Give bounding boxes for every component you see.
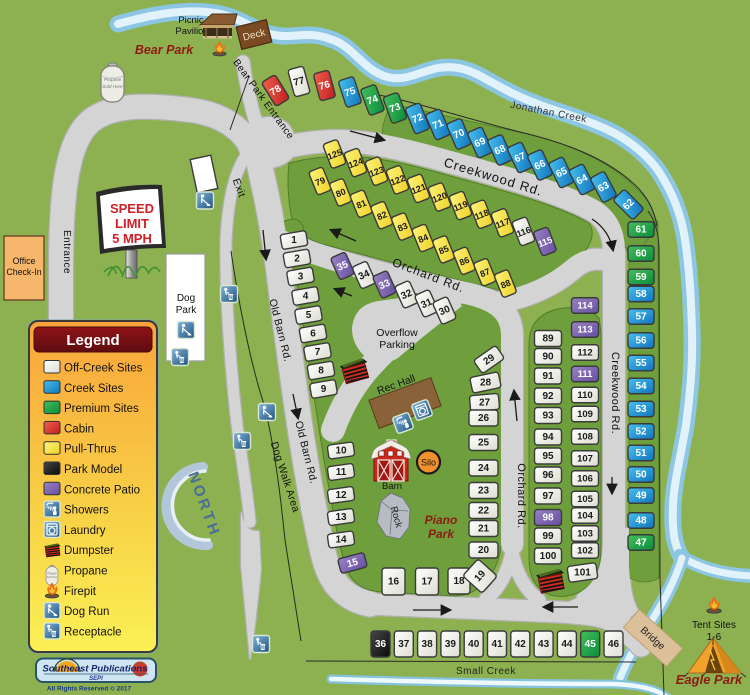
svg-text:99: 99 xyxy=(542,531,554,542)
svg-text:Firepit: Firepit xyxy=(64,586,97,598)
svg-text:3: 3 xyxy=(298,272,304,283)
svg-text:Southeast Publications: Southeast Publications xyxy=(42,664,147,675)
svg-text:61: 61 xyxy=(635,225,647,236)
svg-text:Pull-Thrus: Pull-Thrus xyxy=(64,444,117,456)
svg-text:LIMIT: LIMIT xyxy=(115,216,149,231)
svg-text:92: 92 xyxy=(542,391,554,402)
svg-text:53: 53 xyxy=(635,404,647,415)
svg-text:48: 48 xyxy=(635,516,647,527)
svg-text:43: 43 xyxy=(538,639,550,650)
svg-text:12: 12 xyxy=(335,490,347,501)
svg-text:41: 41 xyxy=(491,639,503,650)
svg-text:97: 97 xyxy=(542,491,554,502)
svg-text:36: 36 xyxy=(375,639,387,650)
svg-text:8: 8 xyxy=(318,366,324,377)
svg-text:51: 51 xyxy=(635,448,647,459)
svg-text:52: 52 xyxy=(635,427,647,438)
svg-text:105: 105 xyxy=(577,494,594,505)
svg-text:Parking: Parking xyxy=(379,339,415,351)
svg-text:106: 106 xyxy=(577,474,593,485)
svg-text:98: 98 xyxy=(542,513,554,524)
svg-text:Receptacle: Receptacle xyxy=(64,626,122,638)
svg-text:Dog Run: Dog Run xyxy=(64,606,109,618)
svg-text:Propane: Propane xyxy=(48,572,58,575)
svg-text:49: 49 xyxy=(635,491,647,502)
svg-text:Piano: Piano xyxy=(425,513,458,527)
svg-text:107: 107 xyxy=(577,454,593,465)
svg-text:14: 14 xyxy=(335,535,347,546)
svg-text:Park: Park xyxy=(428,527,455,541)
svg-text:Sold Here: Sold Here xyxy=(47,576,58,579)
svg-text:17: 17 xyxy=(421,577,433,588)
svg-text:Sold Here: Sold Here xyxy=(102,84,123,89)
svg-text:Office: Office xyxy=(13,256,36,266)
svg-text:5 MPH: 5 MPH xyxy=(112,231,152,246)
svg-text:Overflow: Overflow xyxy=(376,327,418,339)
svg-text:2: 2 xyxy=(294,254,300,265)
svg-text:46: 46 xyxy=(608,639,620,650)
svg-text:104: 104 xyxy=(577,511,594,522)
svg-text:91: 91 xyxy=(542,371,554,382)
svg-text:89: 89 xyxy=(542,334,554,345)
svg-text:109: 109 xyxy=(577,409,593,420)
svg-text:55: 55 xyxy=(635,358,647,369)
svg-text:Laundry: Laundry xyxy=(64,525,106,537)
svg-text:5: 5 xyxy=(306,310,312,321)
svg-text:37: 37 xyxy=(398,639,410,650)
svg-text:20: 20 xyxy=(478,545,490,556)
svg-text:Cabin: Cabin xyxy=(64,423,94,435)
svg-text:18: 18 xyxy=(453,576,465,587)
svg-text:110: 110 xyxy=(577,390,592,401)
svg-text:40: 40 xyxy=(468,639,480,650)
svg-text:16: 16 xyxy=(388,577,400,588)
svg-text:112: 112 xyxy=(577,348,592,359)
svg-text:56: 56 xyxy=(635,336,647,347)
svg-text:57: 57 xyxy=(635,312,647,323)
svg-text:Legend: Legend xyxy=(66,332,119,349)
svg-text:93: 93 xyxy=(542,411,554,422)
svg-text:Creekwood Rd.: Creekwood Rd. xyxy=(609,352,621,434)
svg-text:Propane: Propane xyxy=(64,566,107,578)
svg-text:102: 102 xyxy=(577,546,593,557)
svg-text:108: 108 xyxy=(577,432,593,443)
svg-text:38: 38 xyxy=(422,639,434,650)
svg-text:114: 114 xyxy=(577,301,593,312)
svg-text:13: 13 xyxy=(335,512,347,523)
svg-text:50: 50 xyxy=(635,470,647,481)
svg-text:22: 22 xyxy=(478,506,490,517)
svg-text:Concrete Patio: Concrete Patio xyxy=(64,484,140,496)
svg-text:SPEED: SPEED xyxy=(110,201,154,216)
svg-text:103: 103 xyxy=(577,529,593,540)
svg-text:94: 94 xyxy=(542,432,554,443)
svg-text:113: 113 xyxy=(577,325,592,336)
svg-text:21: 21 xyxy=(478,524,490,535)
svg-text:Entrance: Entrance xyxy=(61,230,72,274)
svg-text:44: 44 xyxy=(561,639,573,650)
svg-text:Silo: Silo xyxy=(421,458,436,468)
svg-text:Showers: Showers xyxy=(64,505,109,517)
svg-text:96: 96 xyxy=(542,470,554,481)
svg-text:Creek Sites: Creek Sites xyxy=(64,383,124,395)
svg-text:23: 23 xyxy=(478,486,490,497)
svg-text:111: 111 xyxy=(578,369,594,380)
svg-text:10: 10 xyxy=(335,446,347,457)
svg-text:Bear Park: Bear Park xyxy=(135,43,194,57)
svg-text:26: 26 xyxy=(478,413,490,424)
svg-text:Propane: Propane xyxy=(104,77,122,82)
svg-text:4: 4 xyxy=(303,291,309,302)
svg-text:Barn: Barn xyxy=(382,481,402,492)
svg-text:1: 1 xyxy=(291,235,297,246)
svg-text:25: 25 xyxy=(478,438,490,449)
svg-text:39: 39 xyxy=(445,639,457,650)
svg-text:47: 47 xyxy=(635,538,647,549)
svg-text:All Rights Reserved © 2017: All Rights Reserved © 2017 xyxy=(47,685,132,693)
svg-text:Small Creek: Small Creek xyxy=(456,666,516,677)
svg-text:54: 54 xyxy=(635,381,647,392)
svg-text:9: 9 xyxy=(321,384,327,395)
svg-text:45: 45 xyxy=(585,639,597,650)
svg-text:Park Model: Park Model xyxy=(64,464,122,476)
svg-text:24: 24 xyxy=(478,463,490,474)
svg-text:28: 28 xyxy=(480,378,492,389)
svg-text:6: 6 xyxy=(310,329,316,340)
svg-text:95: 95 xyxy=(542,451,554,462)
svg-text:11: 11 xyxy=(336,467,347,478)
svg-text:42: 42 xyxy=(515,639,527,650)
svg-text:Tent Sites: Tent Sites xyxy=(692,620,736,631)
svg-text:Orchard Rd.: Orchard Rd. xyxy=(515,463,527,528)
svg-text:Off-Creek Sites: Off-Creek Sites xyxy=(64,363,143,375)
svg-text:101: 101 xyxy=(574,568,591,579)
svg-text:Eagle Park: Eagle Park xyxy=(676,672,743,687)
svg-text:Dog: Dog xyxy=(177,293,195,304)
svg-text:27: 27 xyxy=(479,398,491,409)
svg-text:60: 60 xyxy=(635,249,647,260)
svg-text:Dumpster: Dumpster xyxy=(64,545,114,557)
svg-text:SEPI: SEPI xyxy=(89,676,103,682)
svg-text:Park: Park xyxy=(176,305,198,316)
svg-text:100: 100 xyxy=(540,551,557,562)
svg-text:59: 59 xyxy=(635,272,647,283)
svg-text:90: 90 xyxy=(542,352,554,363)
svg-text:58: 58 xyxy=(635,289,647,300)
svg-text:7: 7 xyxy=(315,347,321,358)
svg-text:Premium Sites: Premium Sites xyxy=(64,403,139,415)
svg-text:Check-In: Check-In xyxy=(6,267,41,277)
